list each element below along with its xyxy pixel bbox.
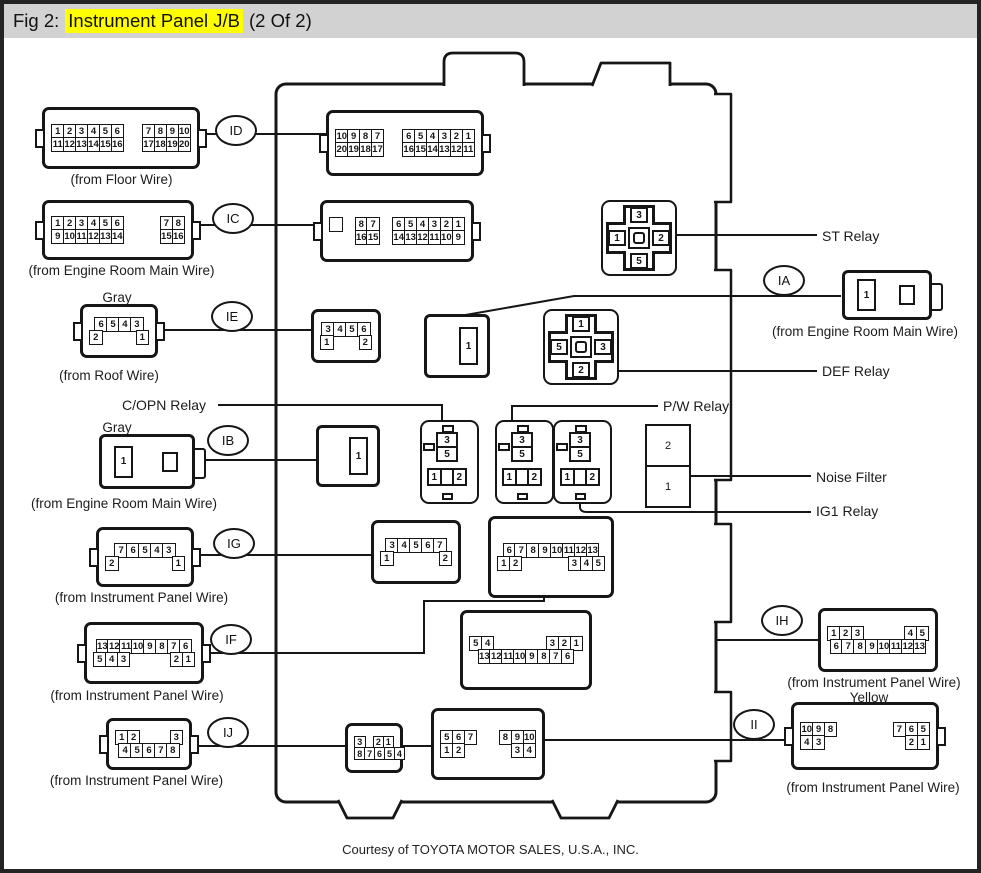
connector-ic-internal: 87654321161514131211109 — [320, 200, 474, 262]
connector-ib-external: 1 — [99, 434, 195, 489]
relay-pin: 5 — [550, 339, 568, 355]
pin-grid: 10987654321 — [800, 722, 930, 750]
pin-grid: 12345678910111213141516 — [51, 216, 185, 244]
pin-cell: 3 — [812, 735, 826, 750]
relay-pin: 1 — [608, 230, 626, 246]
pin-cell: 11 — [462, 142, 476, 157]
connector-ij-external: 12345678 — [106, 718, 192, 770]
copn-relay-socket: 35 12 — [420, 420, 479, 504]
connector-ic-external: 12345678910111213141516 — [42, 200, 194, 260]
pin-cell: 2 — [439, 551, 453, 566]
connector-ih-external: 12345678910111213 — [818, 608, 938, 672]
pin-grid: 7654321 — [105, 543, 185, 571]
pin-cell: 3 — [117, 652, 131, 667]
connector-ie-internal: 345612 — [311, 309, 381, 363]
color-tag-gray-ie: Gray — [87, 290, 147, 305]
pin-grid: 3456712 — [380, 538, 452, 566]
pin-cell: 8 — [166, 743, 180, 758]
caption-ij: (from Instrument Panel Wire) — [19, 773, 254, 788]
ig1-relay-socket: 35 12 — [553, 420, 612, 504]
caption-if: (from Instrument Panel Wire) — [22, 688, 252, 703]
connector-label-ia: IA — [763, 265, 805, 296]
connector-ig-internal: 3456712 — [371, 520, 461, 584]
pin-cell: 1 — [380, 551, 394, 566]
pin-cell: 16 — [111, 137, 125, 152]
pin-cell: 9 — [452, 230, 466, 245]
pin-grid: 67891011121312345 — [497, 543, 605, 571]
pin-cell: 1 — [857, 279, 876, 311]
st-relay-label: ST Relay — [822, 228, 879, 244]
pin-grid: 1098765432120191817161514131211 — [335, 129, 475, 157]
connector-id-external: 1234567891011121314151617181920 — [42, 107, 200, 169]
connector-single-top: 1 — [424, 314, 490, 378]
caption-ia: (from Engine Room Main Wire) — [759, 324, 971, 339]
pin-grid: 654321 — [89, 317, 149, 345]
caption-ic: (from Engine Room Main Wire) — [9, 263, 234, 278]
def-relay: 1 2 5 3 — [543, 309, 619, 385]
pin-cell: 1 — [320, 335, 334, 350]
diagram-page: Fig 2: Instrument Panel J/B (2 Of 2) — [0, 0, 981, 873]
st-relay: 3 5 1 2 — [601, 200, 677, 276]
relay-pin: 2 — [527, 468, 542, 486]
def-relay-label: DEF Relay — [822, 363, 890, 379]
color-tag-gray-ib: Gray — [87, 420, 147, 435]
relay-pin: 5 — [569, 446, 591, 462]
ig1-relay-label: IG1 Relay — [816, 503, 878, 519]
relay-pin: 2 — [585, 468, 600, 486]
connector-id-internal: 1098765432120191817161514131211 — [326, 110, 484, 176]
relay-pin: 1 — [572, 316, 590, 332]
pin-cell: 1 — [172, 556, 186, 571]
connector-if-internal: 54321131211109876 — [460, 610, 592, 690]
pw-relay-socket: 35 12 — [495, 420, 554, 504]
pin-cell: 2 — [452, 743, 466, 758]
pin-cell: 8 — [824, 722, 838, 737]
connector-label-ie: IE — [211, 301, 253, 332]
pin-cell: 13 — [913, 639, 927, 654]
pin-cell: 1 — [182, 652, 196, 667]
caption-ie: (from Roof Wire) — [44, 368, 174, 383]
courtesy-note: Courtesy of TOYOTA MOTOR SALES, U.S.A., … — [4, 842, 977, 857]
pin-cell: 5 — [592, 556, 606, 571]
relay-pin: 1 — [647, 465, 689, 506]
pin-cell: 20 — [178, 137, 192, 152]
pin-grid: 13121110987654321 — [93, 639, 195, 667]
connector-ib-internal: 1 — [316, 425, 380, 487]
caption-id: (from Floor Wire) — [34, 172, 209, 187]
pin-cell: 15 — [366, 230, 380, 245]
pin-cell: 1 — [349, 437, 368, 475]
pin-cell: 7 — [464, 730, 478, 745]
pin-cell: 2 — [359, 335, 373, 350]
pin-cell: 1 — [917, 735, 931, 750]
connector-label-ig: IG — [213, 528, 255, 559]
pin-cell: 4 — [523, 743, 537, 758]
connector-label-id: ID — [215, 115, 257, 146]
pin-cell: 6 — [561, 649, 575, 664]
relay-pin: 2 — [572, 362, 590, 378]
pin-grid: 32187654 — [354, 736, 394, 760]
connector-label-if: IF — [210, 624, 252, 655]
connector-label-ib: IB — [207, 425, 249, 456]
pin-grid: 56789101234 — [440, 730, 536, 758]
relay-pin: 5 — [630, 253, 648, 269]
caption-ih: (from Instrument Panel Wire) — [764, 675, 981, 690]
relay-pin: 3 — [594, 339, 612, 355]
copn-relay-label: C/OPN Relay — [122, 397, 206, 413]
pin-grid: 12345678 — [115, 730, 183, 758]
connector-ii-external: 10987654321 — [791, 702, 939, 770]
noise-filter: 2 1 — [645, 424, 691, 508]
pw-relay-label: P/W Relay — [663, 398, 729, 414]
connector-label-ic: IC — [212, 203, 254, 234]
pin-grid: 54321131211109876 — [469, 636, 583, 664]
connector-bottom-mid-internal: 56789101234 — [431, 708, 545, 780]
pin-cell: 2 — [105, 556, 119, 571]
connector-ig-external: 7654321 — [96, 527, 194, 587]
connector-label-ii: II — [733, 709, 775, 740]
noise-filter-label: Noise Filter — [816, 469, 887, 485]
pin-cell: 1 — [136, 330, 150, 345]
connector-ij-internal: 32187654 — [345, 723, 403, 773]
connector-if-external: 13121110987654321 — [84, 622, 204, 684]
pin-cell: 16 — [172, 229, 186, 244]
relay-pin: 3 — [630, 207, 648, 223]
pin-grid: 345612 — [320, 322, 372, 350]
pin-cell: 2 — [89, 330, 103, 345]
connector-13pin-internal: 67891011121312345 — [488, 516, 614, 598]
pin-cell: 14 — [111, 229, 125, 244]
pin-cell: 4 — [394, 747, 406, 760]
pin-cell: 1 — [459, 327, 478, 365]
caption-ib: (from Engine Room Main Wire) — [4, 496, 244, 511]
pin-grid: 1234567891011121314151617181920 — [51, 124, 191, 152]
relay-pin: 2 — [452, 468, 467, 486]
pin-cell: 2 — [509, 556, 523, 571]
connector-label-ih: IH — [761, 605, 803, 636]
connector-label-ij: IJ — [207, 717, 249, 748]
pin-grid: 12345678910111213 — [827, 626, 929, 654]
connector-ia-external: 1 — [842, 270, 932, 320]
relay-pin: 5 — [511, 446, 533, 462]
relay-pin: 2 — [652, 230, 670, 246]
pin-cell: 17 — [371, 142, 385, 157]
relay-pin: 5 — [436, 446, 458, 462]
caption-ig: (from Instrument Panel Wire) — [29, 590, 254, 605]
connector-ie-external: 654321 — [80, 304, 158, 358]
pin-cell: 1 — [114, 446, 133, 478]
pin-grid: 87654321161514131211109 — [329, 217, 465, 245]
relay-pin: 2 — [647, 426, 689, 465]
caption-ii: (from Instrument Panel Wire) — [762, 780, 981, 795]
